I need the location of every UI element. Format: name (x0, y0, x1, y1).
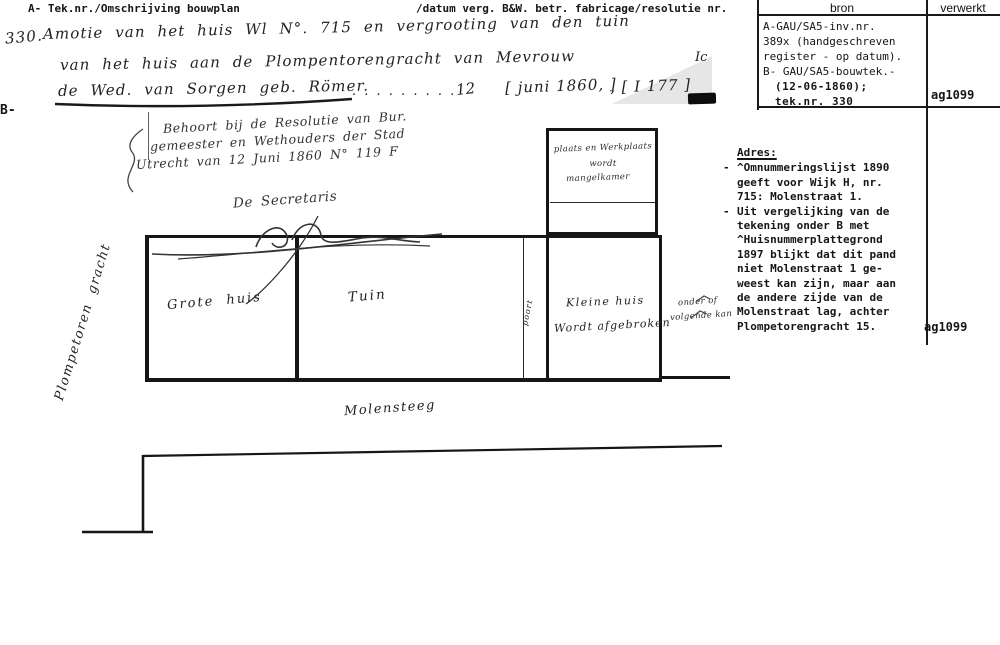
adres-title: Adres: (737, 146, 777, 160)
plan-annex-inner-line (550, 202, 655, 203)
plan-wall-kleinehuis (546, 238, 549, 379)
verwerkt-value-bottom: ag1099 (924, 320, 967, 334)
adres-line: geeft voor Wijk H, nr. (737, 176, 933, 190)
entry-ref-bracket: , [ I 177 ] (610, 76, 692, 97)
dotted-leaders: . . . . . . . . . (352, 84, 456, 99)
label-kleine-huis: Kleine huis (566, 294, 645, 310)
adres-line: ^Omnummeringslijst 1890 (737, 161, 933, 175)
adres-line: Uit vergelijking van de (737, 205, 933, 219)
street-line (142, 446, 722, 456)
resolution-signoff: De Secretaris (233, 188, 338, 211)
adres-block: Adres: - ^Omnummeringslijst 1890 geeft v… (737, 146, 933, 334)
corner-note: Ic (695, 50, 707, 65)
entry-day: 12 (455, 79, 476, 99)
label-plompetorengracht: Plompetoren gracht (52, 241, 114, 402)
label-tuin: Tuin (347, 286, 387, 305)
column-divider-main-bron (757, 0, 759, 110)
label-molensteeg: Molensteeg (344, 398, 437, 419)
header-verwerkt-label: verwerkt (926, 1, 1000, 15)
header-rule (757, 14, 1000, 16)
adres-line: Plompetorengracht 15. (737, 320, 933, 334)
side-note-2: volgende kan (670, 309, 733, 323)
bullet-dash: - (723, 205, 730, 219)
bron-line: register - op datum). (763, 49, 902, 64)
entry-underline-stroke (55, 99, 352, 106)
adres-line: weest kan zijn, maar aan (737, 277, 933, 291)
bron-line-bold: tek.nr. 330 (763, 94, 902, 109)
bullet-dash: - (723, 161, 730, 175)
bron-block: A-GAU/SA5-inv.nr. 389x (handgeschreven r… (763, 19, 902, 109)
plan-bottom-extension-line (660, 376, 730, 379)
adres-item-1: - ^Omnummeringslijst 1890 geeft voor Wij… (737, 161, 933, 204)
bron-line: 389x (handgeschreven (763, 34, 902, 49)
adres-line: 1897 blijkt dat dit pand (737, 248, 933, 262)
entry-date-bracket: [ juni 1860, ] (505, 75, 617, 97)
adres-line: Molenstraat lag, achter (737, 305, 933, 319)
adres-line: tekening onder B met (737, 219, 933, 233)
header-left-label: A- Tek.nr./Omschrijving bouwplan (28, 2, 240, 15)
ink-smudge (688, 93, 716, 105)
bron-line: B- GAU/SA5-bouwtek.- (763, 64, 902, 79)
bron-line-bold: (12-06-1860); (763, 79, 902, 94)
entry-line-2: van het huis aan de Plompentorengracht v… (60, 47, 575, 74)
adres-line: niet Molenstraat 1 ge- (737, 262, 933, 276)
adres-line: ^Huisnummerplattegrond (737, 233, 933, 247)
adres-line: 715: Molenstraat 1. (737, 190, 933, 204)
adres-item-2: - Uit vergelijking van de tekening onder… (737, 205, 933, 335)
margin-section-b: B- (0, 103, 16, 118)
plan-wall-grotehuis-tuin (295, 238, 299, 379)
header-bron-label: bron (758, 1, 926, 15)
stray-fold-line (148, 112, 149, 160)
adres-line: de andere zijde van de (737, 291, 933, 305)
side-note-1: onder of (678, 296, 718, 309)
entry-number: 330. (4, 26, 43, 47)
verwerkt-value-top: ag1099 (931, 88, 974, 102)
entry-line-1: Amotie van het huis Wl N°. 715 en vergro… (43, 12, 630, 43)
annex-label-2: wordt (551, 159, 655, 169)
archive-card: A- Tek.nr./Omschrijving bouwplan /datum … (0, 0, 1000, 645)
bron-line: A-GAU/SA5-inv.nr. (763, 19, 902, 34)
entry-line-3: de Wed. van Sorgen geb. Römer. (58, 77, 369, 100)
